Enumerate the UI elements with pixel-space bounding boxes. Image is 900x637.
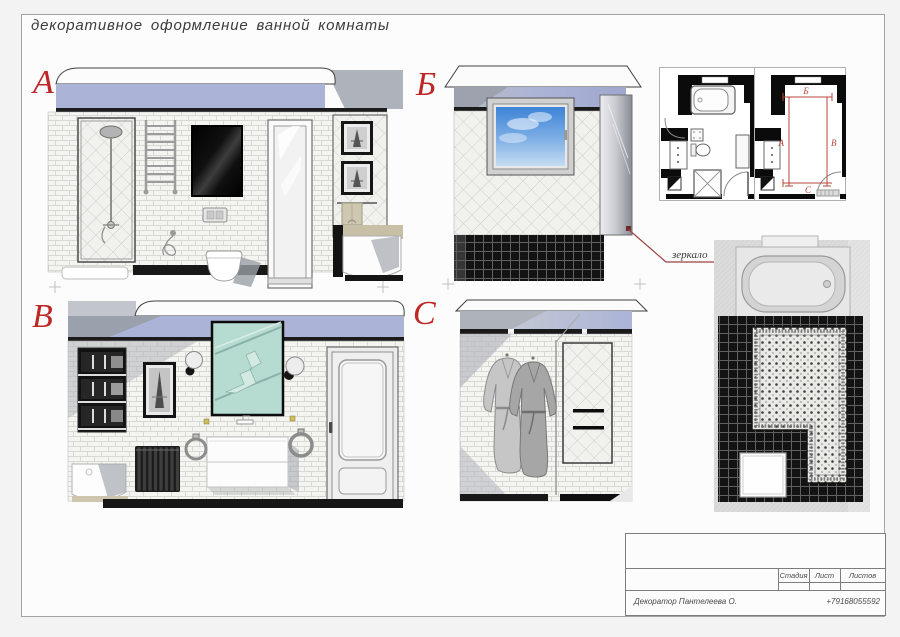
towel-bar-1 — [573, 409, 604, 413]
decorator-name: Декоратор Пантелеева О. — [634, 597, 737, 606]
mint-mirror — [212, 322, 283, 415]
gold-fixture-right — [290, 416, 295, 421]
framed-photo — [143, 362, 176, 418]
floor-tiling-plan — [710, 234, 876, 518]
shower-niche — [78, 118, 135, 262]
shower-tray-plan — [740, 453, 786, 497]
ceiling-band — [56, 84, 325, 108]
corner-symbol — [668, 177, 681, 190]
elevation-v-label: В — [32, 300, 53, 334]
diagonal-tile-panel — [563, 343, 612, 463]
key-plan-markers: Б А В С — [753, 66, 847, 202]
vanity-cabinet — [207, 437, 299, 495]
title-block-line — [626, 568, 885, 569]
sheets-header: Листов — [840, 571, 885, 580]
stage-header: Стадия — [778, 571, 809, 580]
toilet-plan — [691, 144, 710, 156]
window-handle — [564, 130, 567, 140]
mirror-annotation-text: зеркало — [671, 249, 708, 261]
design-sheet-page: { "sheet": { "title": "декоративное офор… — [0, 0, 900, 637]
title-block: Стадия Лист Листов Декоратор Пантелеева … — [625, 533, 886, 616]
gold-fixture-left — [204, 419, 209, 424]
decorator-phone: +79168055592 — [826, 597, 880, 606]
bathtub-left — [72, 464, 128, 502]
elevation-c-drawing — [450, 296, 650, 524]
marker-bottom: С — [805, 185, 812, 195]
sheet-header: Лист — [809, 571, 840, 580]
black-base-tiles — [103, 499, 403, 508]
ceiling-shadow — [68, 301, 136, 317]
elevation-v-drawing — [63, 296, 405, 526]
sink-plan — [691, 129, 703, 141]
elevation-b-label: Б — [416, 68, 436, 102]
corner-symbol — [761, 177, 774, 190]
vanity-plan — [736, 135, 749, 168]
wall-mirror — [600, 95, 632, 235]
black-base-left — [460, 494, 548, 501]
cornice — [445, 66, 641, 87]
marker-right: В — [831, 138, 837, 148]
dark-mirror-panel — [192, 126, 242, 196]
window-niche — [795, 77, 821, 83]
marker-left: А — [778, 138, 785, 148]
cornice — [56, 68, 335, 84]
washing-column — [670, 141, 687, 169]
flush-plate — [203, 208, 227, 222]
framed-photo-2 — [341, 161, 373, 195]
elevation-a-drawing — [45, 65, 405, 295]
black-border-tiles — [56, 108, 387, 112]
bathtub-plan — [736, 247, 850, 321]
shower-tray-plan — [694, 170, 721, 197]
bathtub-plan — [691, 86, 735, 114]
ceiling-shadow — [326, 70, 403, 109]
elevation-c-label: С — [413, 297, 436, 331]
glass-door — [268, 120, 312, 288]
shelving-unit — [78, 348, 126, 432]
title-block-line — [626, 590, 885, 591]
sheet-title: декоративное оформление ванной комнаты — [31, 17, 390, 34]
title-block-line — [778, 582, 885, 583]
marker-top: Б — [802, 86, 809, 96]
window-niche — [702, 77, 728, 83]
cornice — [135, 301, 404, 316]
survey-ticks — [49, 281, 389, 293]
panel-door — [327, 347, 398, 507]
cornice — [456, 300, 647, 311]
window — [487, 98, 574, 175]
radiator — [135, 446, 180, 492]
black-border-tiles — [460, 329, 632, 334]
black-tile-wainscot — [454, 235, 604, 281]
towel-bar-2 — [573, 426, 604, 430]
door-handle — [329, 422, 333, 433]
picture-pier — [333, 115, 387, 238]
framed-photo-1 — [341, 121, 373, 155]
key-plan-furniture — [658, 66, 756, 202]
bathtub-rim-left — [62, 267, 128, 279]
bathtub-right — [333, 225, 403, 281]
